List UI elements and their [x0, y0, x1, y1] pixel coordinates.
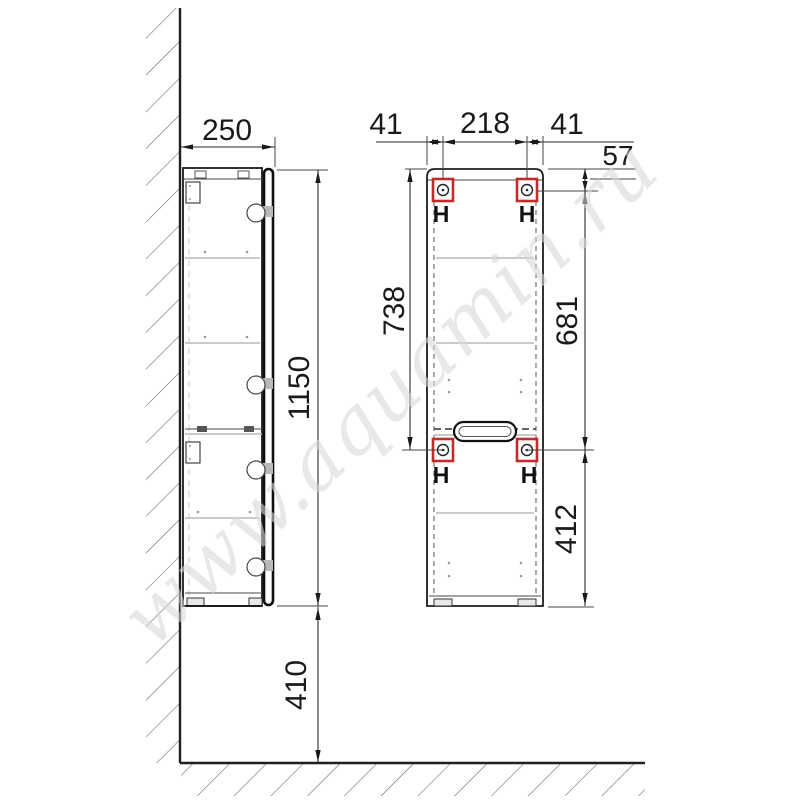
dim-hanger-spacing-label: 218	[460, 107, 510, 140]
hanger-mount-top-left	[433, 179, 453, 201]
hinge-cup	[247, 376, 265, 394]
dim-depth-label: 250	[202, 114, 252, 147]
foot	[249, 598, 262, 606]
hook-label: H	[433, 201, 450, 227]
floor-hatch	[181, 763, 645, 796]
divider-fitting	[197, 426, 207, 432]
floor	[180, 763, 645, 796]
wall-bracket-bottom	[186, 442, 200, 463]
dim-right-offset-label: 41	[550, 108, 583, 141]
technical-drawing: 250 1150 410	[0, 0, 800, 800]
hook-label: H	[521, 462, 538, 488]
foot	[434, 599, 452, 606]
door-handle	[454, 422, 516, 441]
dim-hanger-span-label: 681	[551, 296, 584, 346]
dim-floor-label: 410	[280, 660, 313, 710]
top-clip	[195, 171, 206, 178]
hook-label: H	[433, 462, 450, 488]
foot	[518, 599, 536, 606]
top-clip	[238, 171, 249, 178]
divider-fitting	[244, 426, 254, 432]
dim-depth: 250	[180, 114, 275, 167]
dim-lower-span-label: 412	[550, 504, 583, 554]
dim-left-offset-label: 41	[369, 108, 402, 141]
dim-lower-span: 412	[548, 450, 594, 607]
wall-bracket-top	[186, 182, 200, 203]
dim-floor-clearance: 410	[280, 607, 321, 763]
hinge-cup	[247, 204, 265, 222]
